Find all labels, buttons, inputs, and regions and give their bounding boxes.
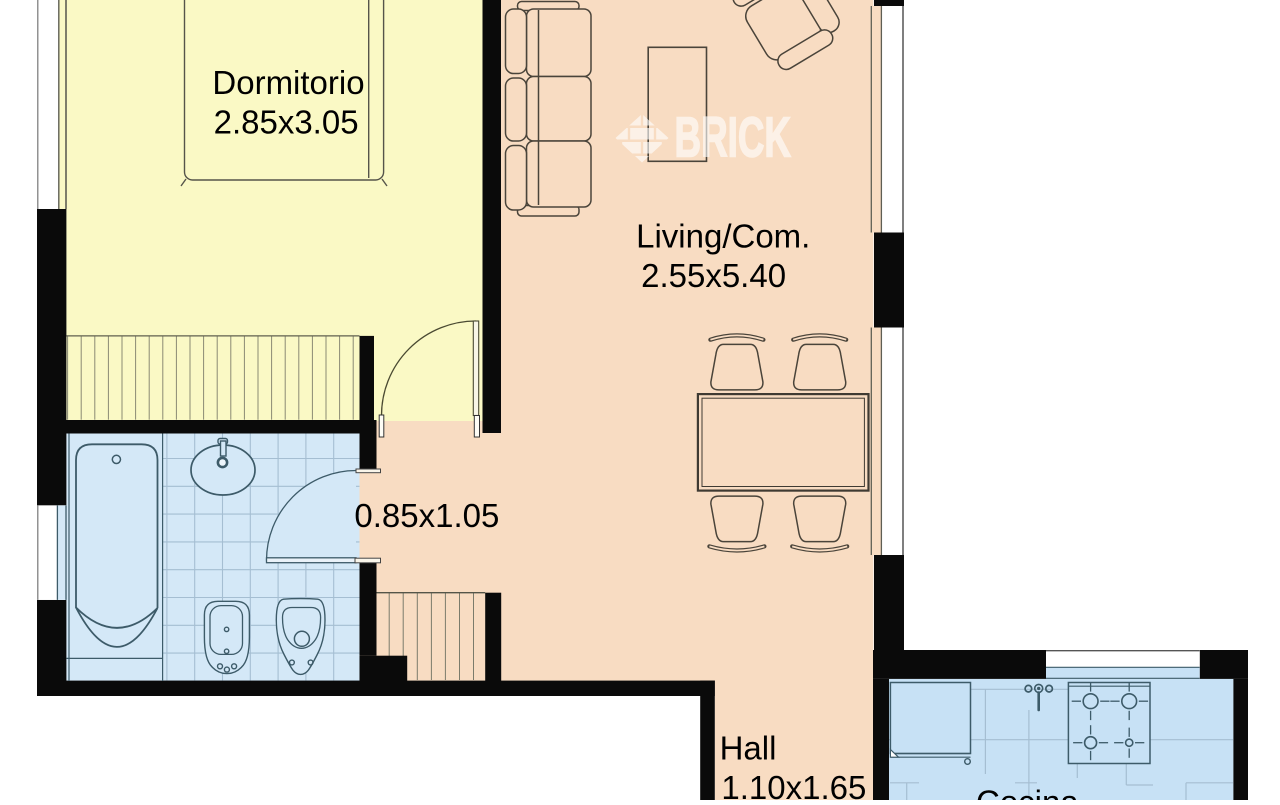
svg-text:Dormitorio: Dormitorio [212, 64, 364, 101]
svg-text:Cocina: Cocina [976, 783, 1079, 800]
svg-text:Hall: Hall [720, 729, 777, 766]
svg-text:BRICK: BRICK [675, 106, 792, 170]
svg-text:Living/Com.: Living/Com. [636, 218, 810, 255]
svg-text:1.10x1.65: 1.10x1.65 [721, 769, 866, 800]
svg-text:2.85x3.05: 2.85x3.05 [214, 104, 359, 141]
svg-text:0.85x1.05: 0.85x1.05 [354, 497, 499, 534]
svg-text:2.55x5.40: 2.55x5.40 [641, 257, 786, 294]
